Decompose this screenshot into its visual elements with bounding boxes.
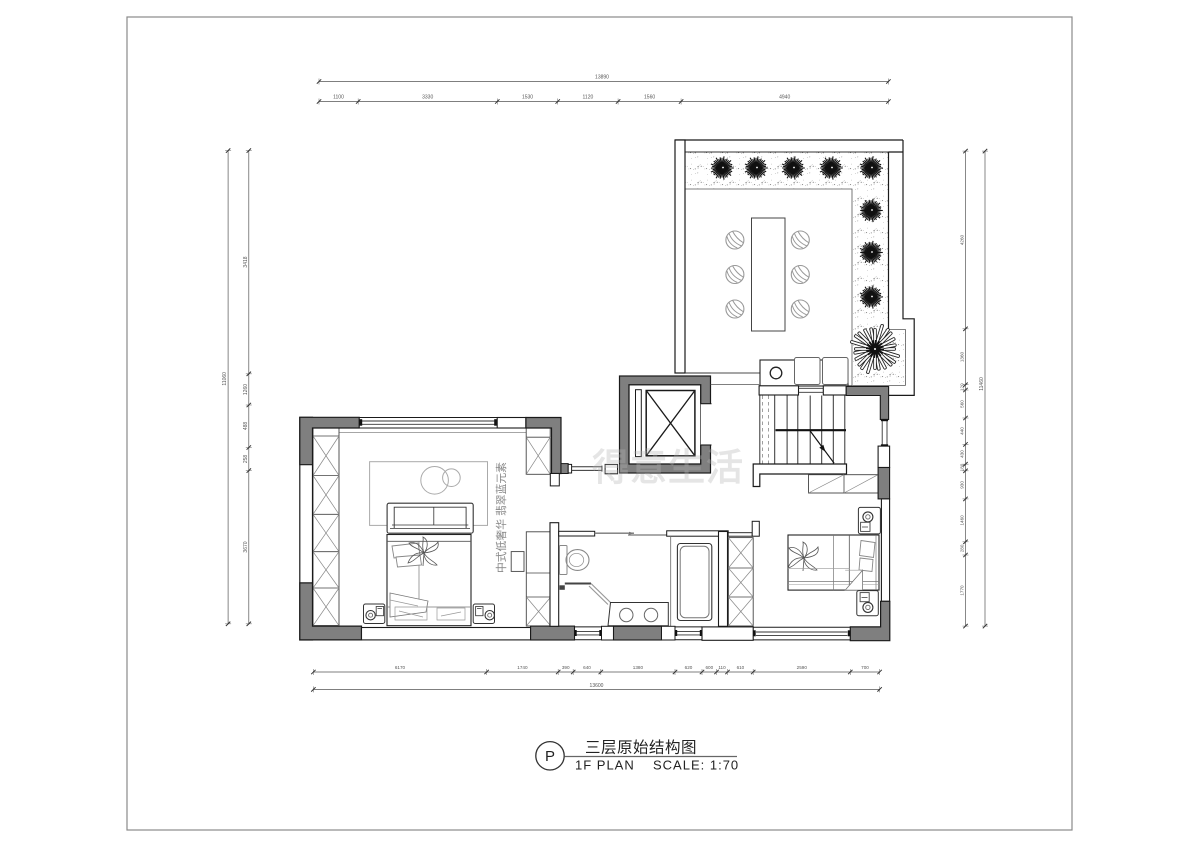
svg-text:610: 610 [737, 665, 745, 670]
svg-text:430: 430 [960, 450, 965, 458]
svg-text:1530: 1530 [522, 95, 533, 101]
svg-text:110: 110 [718, 665, 726, 670]
svg-text:P: P [545, 748, 555, 765]
svg-text:640: 640 [583, 665, 591, 670]
svg-text:390: 390 [562, 665, 570, 670]
svg-text:SCALE: 1:70: SCALE: 1:70 [653, 758, 739, 773]
svg-text:11460: 11460 [979, 377, 985, 391]
svg-text:得意生活: 得意生活 [592, 447, 744, 488]
svg-text:中式低奢华 翡翠蓝元素: 中式低奢华 翡翠蓝元素 [494, 462, 508, 573]
svg-text:13890: 13890 [595, 75, 609, 81]
svg-text:4940: 4940 [779, 95, 790, 101]
svg-text:1360: 1360 [960, 351, 965, 362]
svg-text:3670: 3670 [243, 541, 249, 552]
svg-text:1740: 1740 [517, 665, 528, 670]
svg-text:600: 600 [705, 665, 713, 670]
svg-text:120: 120 [960, 383, 965, 391]
svg-text:三层原始结构图: 三层原始结构图 [585, 739, 697, 757]
svg-text:258: 258 [243, 455, 249, 464]
svg-text:1770: 1770 [960, 585, 965, 596]
svg-text:2590: 2590 [797, 665, 808, 670]
svg-text:1460: 1460 [960, 515, 965, 526]
svg-text:1560: 1560 [644, 95, 655, 101]
svg-text:488: 488 [243, 422, 249, 431]
svg-text:620: 620 [685, 665, 693, 670]
svg-text:930: 930 [960, 481, 965, 489]
svg-text:13600: 13600 [590, 683, 604, 689]
svg-text:700: 700 [861, 665, 869, 670]
svg-text:1380: 1380 [633, 665, 644, 670]
svg-text:4260: 4260 [960, 234, 965, 245]
svg-text:180: 180 [960, 463, 965, 471]
svg-text:440: 440 [960, 427, 965, 435]
svg-text:280: 280 [960, 544, 965, 552]
svg-text:3330: 3330 [422, 95, 433, 101]
svg-text:11060: 11060 [222, 372, 228, 386]
svg-text:1F PLAN: 1F PLAN [575, 758, 635, 773]
svg-text:6170: 6170 [395, 665, 406, 670]
svg-text:3418: 3418 [243, 256, 249, 267]
svg-text:560: 560 [960, 400, 965, 408]
svg-text:1260: 1260 [243, 384, 249, 395]
svg-text:1120: 1120 [583, 95, 594, 101]
svg-text:1100: 1100 [333, 95, 344, 101]
